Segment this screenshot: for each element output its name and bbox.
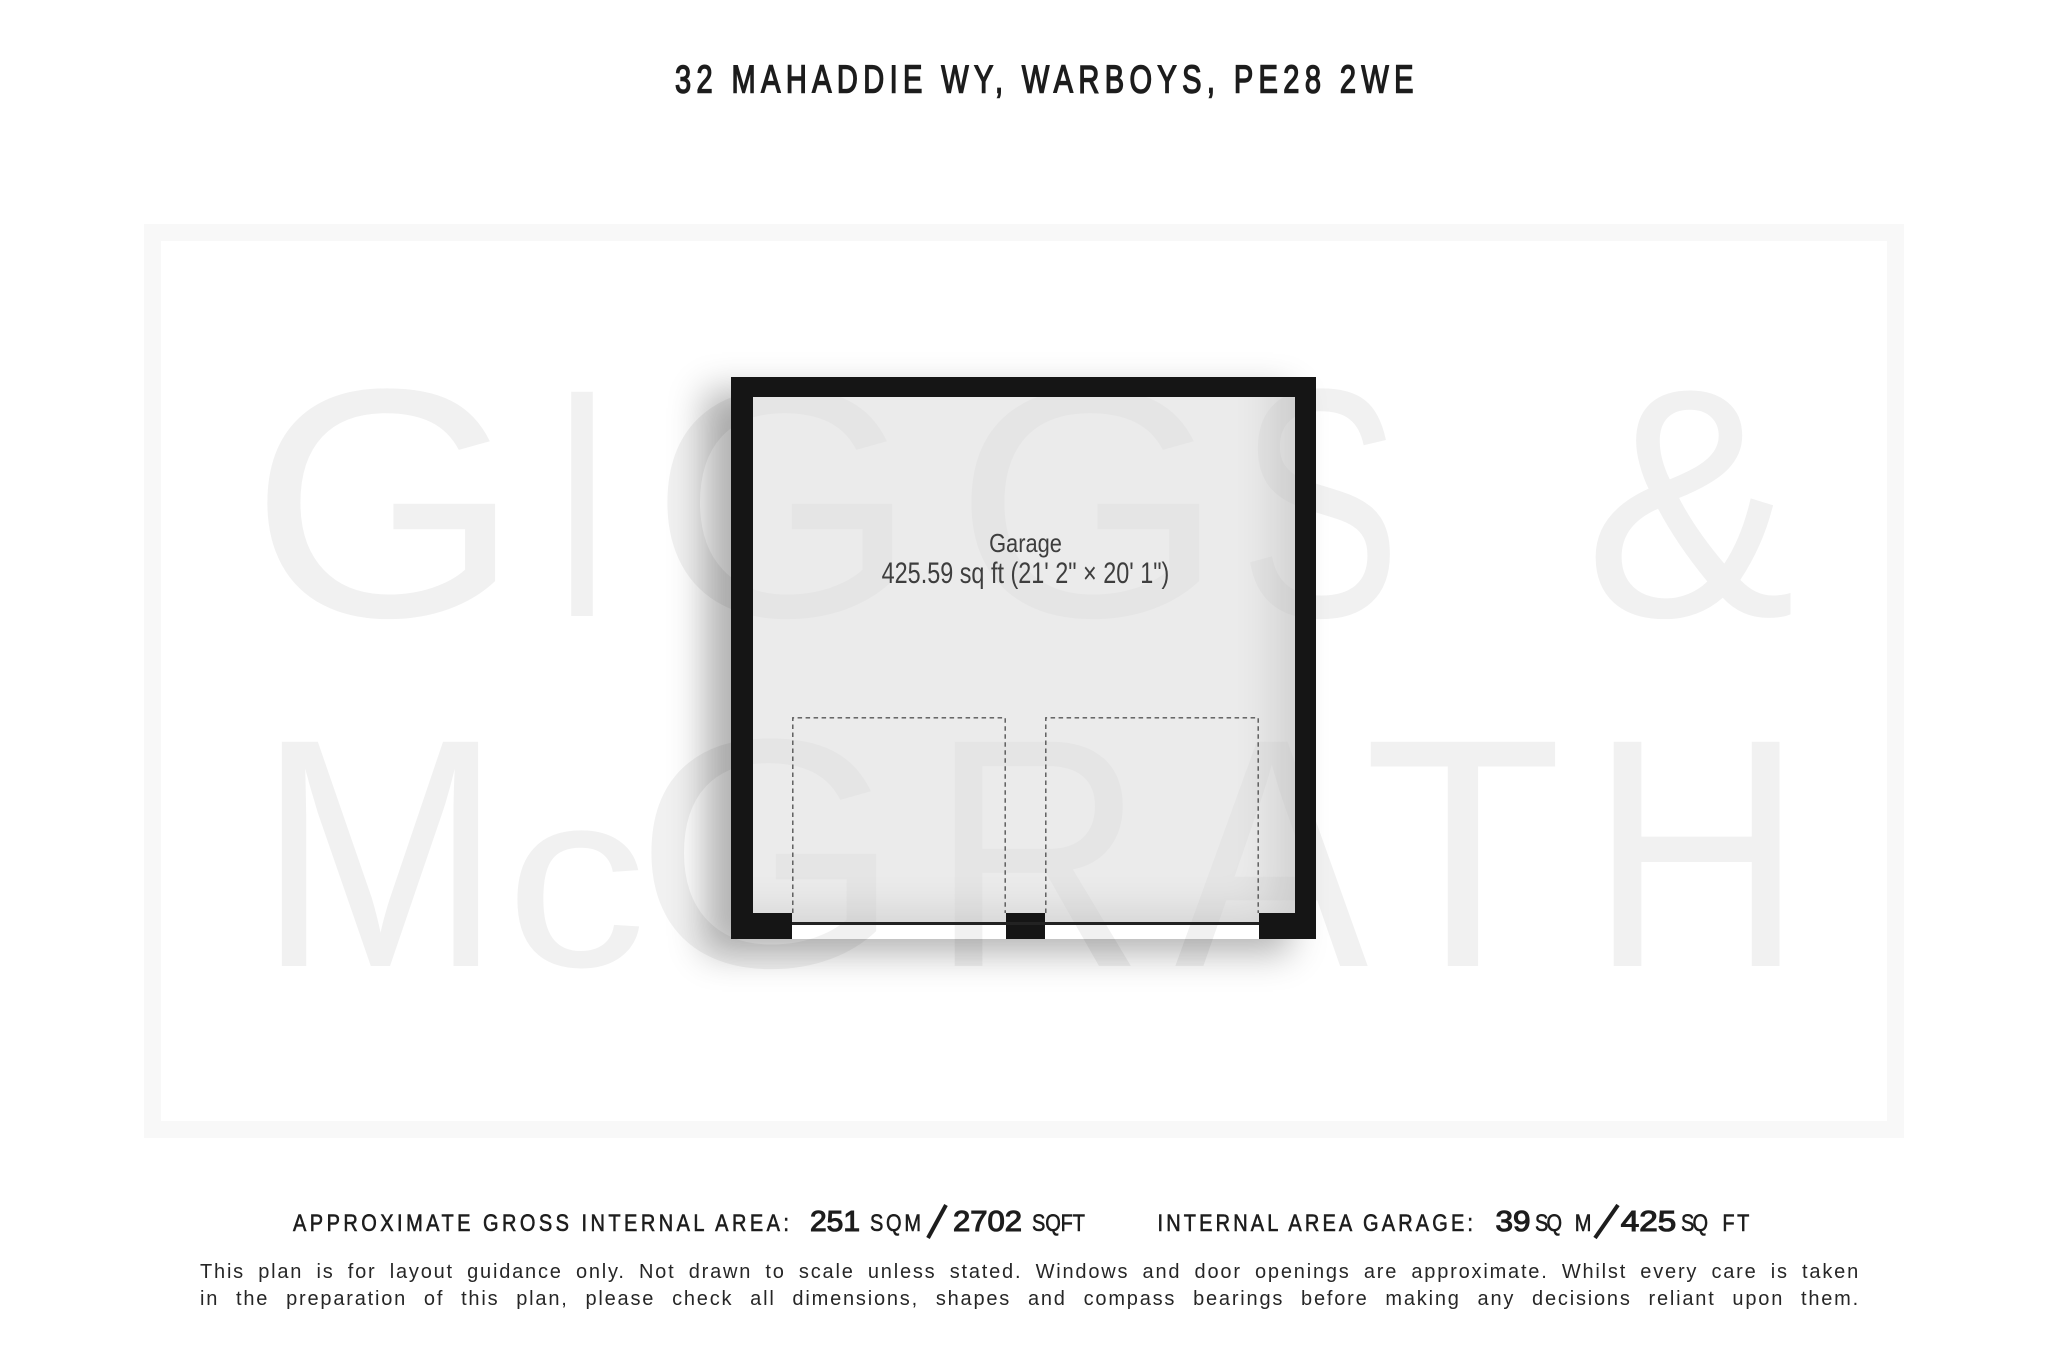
svg-text:SQFT: SQFT xyxy=(1032,1209,1085,1236)
svg-text:SQ: SQ xyxy=(1535,1209,1562,1236)
svg-text:SQM: SQM xyxy=(870,1209,921,1236)
svg-text:APPROXIMATE GROSS INTERNAL ARE: APPROXIMATE GROSS INTERNAL AREA: xyxy=(293,1209,789,1236)
svg-text:39: 39 xyxy=(1496,1206,1531,1238)
svg-text:M: M xyxy=(1575,1209,1592,1236)
svg-text:425: 425 xyxy=(1621,1206,1677,1238)
svg-text:FT: FT xyxy=(1722,1209,1749,1236)
svg-text:SQ: SQ xyxy=(1681,1209,1708,1236)
svg-text:INTERNAL AREA GARAGE:: INTERNAL AREA GARAGE: xyxy=(1158,1209,1474,1236)
svg-text:251: 251 xyxy=(810,1206,860,1238)
svg-text:2702: 2702 xyxy=(953,1206,1022,1238)
